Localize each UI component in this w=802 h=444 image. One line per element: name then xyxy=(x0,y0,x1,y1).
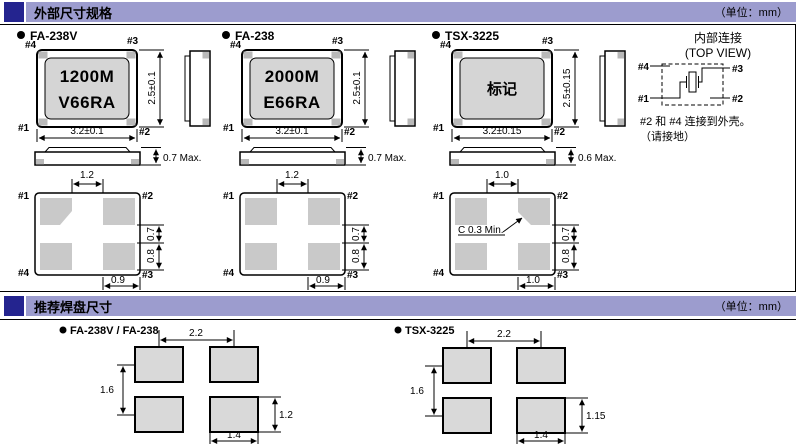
land-pattern-name: FA-238V / FA-238 xyxy=(70,325,159,337)
pad-height-label: 1.15 xyxy=(586,411,606,422)
side-body xyxy=(35,152,140,165)
pin-label: #2 xyxy=(139,127,151,138)
crystal-symbol xyxy=(689,72,696,92)
bottom-dim: 1.0 xyxy=(526,275,540,286)
datasheet-page: 外部尺寸规格 （单位：mm） FA-238V #4 #3 #1 #2 1200M… xyxy=(0,0,802,444)
width-dim-label: 3.2±0.15 xyxy=(483,126,522,137)
grounding-note-line2: （请接地） xyxy=(640,130,695,143)
pin-label: #3 xyxy=(127,36,139,47)
land-view: 1.2 #1 #2 #4 #3 0.7 0.8 0.9 xyxy=(223,170,369,290)
bullet-icon xyxy=(432,31,440,39)
pad xyxy=(517,348,565,383)
pin-label: #2 xyxy=(347,191,359,202)
chamfer-note: C 0.3 Min. xyxy=(458,225,504,236)
pad xyxy=(308,243,340,270)
unit-label: （单位：mm） xyxy=(715,298,788,314)
land-pattern-name: TSX-3225 xyxy=(405,325,455,337)
corner-terminal xyxy=(127,52,136,59)
height-dimension: 2.5±0.1 xyxy=(139,50,164,127)
width-dim-label: 3.2±0.1 xyxy=(275,126,309,137)
internal-connection-title: 内部连接 xyxy=(694,30,742,45)
thickness-label: 0.6 Max. xyxy=(578,153,616,164)
pin-label: #4 xyxy=(638,62,650,73)
internal-connection-diagram: 内部连接 (TOP VIEW) #4 #3 #1 #2 #2 和 #4 连接到外… xyxy=(630,28,802,148)
side-view-vertical xyxy=(185,51,210,126)
side-body xyxy=(395,51,415,126)
bottom-dim: 0.9 xyxy=(316,275,330,286)
pitch-x-dimension: 2.2 xyxy=(159,328,234,347)
right-lower-dim: 0.8 xyxy=(561,249,572,263)
side-view-vertical xyxy=(390,51,415,126)
grounding-note-line1: #2 和 #4 连接到外壳。 xyxy=(640,114,751,128)
unit-label: （单位：mm） xyxy=(715,4,788,20)
pad-height-label: 1.2 xyxy=(279,410,293,421)
side-body xyxy=(605,51,625,126)
wire-pin3 xyxy=(699,68,731,82)
fa-238v-drawings: FA-238V #4 #3 #1 #2 1200M V66RA 3.2±0.1 … xyxy=(10,28,225,293)
side-body xyxy=(240,152,345,165)
pad xyxy=(210,397,258,432)
corner-terminal xyxy=(127,119,136,126)
side-terminal xyxy=(203,52,210,59)
section-divider xyxy=(0,319,796,320)
right-lower-dim: 0.8 xyxy=(351,249,362,263)
pin-label: #1 xyxy=(638,94,650,105)
pitch-y-dimension: 1.6 xyxy=(100,365,135,415)
fa-238-drawings: FA-238 #4 #3 #1 #2 2000M E66RA 3.2±0.1 2… xyxy=(215,28,430,293)
pin-label: #3 xyxy=(332,36,344,47)
land-view: 1.0 #1 #2 #4 #3 C 0.3 Min. 0.7 0.8 1.0 xyxy=(433,170,579,290)
pad xyxy=(443,348,491,383)
package-name: TSX-3225 xyxy=(445,29,499,43)
pin-label: #1 xyxy=(18,123,30,134)
pin-label: #1 xyxy=(223,123,235,134)
height-dimension: 2.5±0.15 xyxy=(554,50,579,127)
side-terminal xyxy=(618,119,625,126)
bullet-icon xyxy=(395,327,402,334)
marking-line2: E66RA xyxy=(263,93,320,112)
pad xyxy=(518,243,550,270)
section-title-bar: 推荐焊盘尺寸 （单位：mm） xyxy=(26,296,796,316)
side-view-vertical xyxy=(600,51,625,126)
bottom-dim: 0.9 xyxy=(111,275,125,286)
section-title: 外部尺寸规格 xyxy=(34,3,112,22)
pin-label: #3 xyxy=(557,270,569,281)
pitch-y-dimension: 1.6 xyxy=(410,366,443,416)
pitch-x-label: 2.2 xyxy=(189,328,203,339)
pad xyxy=(245,243,277,270)
internal-connection-subtitle: (TOP VIEW) xyxy=(685,46,751,60)
side-terminal xyxy=(546,159,554,165)
pin-label: #2 xyxy=(557,191,569,202)
pad xyxy=(40,243,72,270)
pin-label: #1 xyxy=(433,123,445,134)
pad xyxy=(308,198,340,225)
pad-height-dimension: 1.2 xyxy=(259,397,293,432)
land-pattern-tsx: TSX-3225 2.2 1.6 1.15 1.4 xyxy=(390,324,660,444)
corner-terminal xyxy=(39,52,48,59)
side-terminal xyxy=(451,159,459,165)
pad xyxy=(455,243,487,270)
top-gap-label: 1.2 xyxy=(285,170,299,181)
pin-label: #2 xyxy=(554,127,566,138)
wire-pin1 xyxy=(650,82,687,98)
right-upper-dim: 0.7 xyxy=(561,227,572,241)
right-upper-dim: 0.7 xyxy=(146,227,157,241)
pin-label: #4 xyxy=(18,268,30,279)
land-view: 1.2 #1 #2 #4 #3 0.7 0.8 0.9 xyxy=(18,170,164,290)
section-title: 推荐焊盘尺寸 xyxy=(34,297,112,316)
corner-terminal xyxy=(244,119,253,126)
top-view: #4 #3 #1 #2 1200M V66RA xyxy=(18,36,151,138)
side-view-horizontal: 0.7 Max. xyxy=(240,148,406,166)
thickness-label: 0.7 Max. xyxy=(368,153,406,164)
pad xyxy=(245,198,277,225)
package-name: FA-238V xyxy=(30,29,77,43)
section-marker-square xyxy=(4,2,24,22)
corner-terminal xyxy=(542,119,551,126)
pitch-y-label: 1.6 xyxy=(410,386,424,397)
side-body xyxy=(450,152,555,165)
pin-label: #4 xyxy=(25,40,37,51)
marking-line1: 标记 xyxy=(486,80,517,98)
width-dimension: 3.2±0.1 xyxy=(242,126,342,142)
tsx-3225-drawings: TSX-3225 #4 #3 #1 #2 标记 3.2±0.15 2.5±0.1… xyxy=(425,28,640,293)
pad xyxy=(103,243,135,270)
width-dim-label: 3.2±0.1 xyxy=(70,126,104,137)
side-terminal xyxy=(408,52,415,59)
pad xyxy=(210,347,258,382)
top-gap-label: 1.0 xyxy=(495,170,509,181)
side-terminal xyxy=(36,159,44,165)
bullet-icon xyxy=(17,31,25,39)
pad xyxy=(103,198,135,225)
land-pattern-fa: FA-238V / FA-238 2.2 1.6 1.2 1.4 xyxy=(55,324,325,444)
thickness-label: 0.7 Max. xyxy=(163,153,201,164)
pin-label: #2 xyxy=(344,127,356,138)
pad xyxy=(135,347,183,382)
pin-label: #3 xyxy=(542,36,554,47)
side-terminal xyxy=(241,159,249,165)
pin-label: #4 xyxy=(230,40,242,51)
side-view-horizontal: 0.6 Max. xyxy=(450,148,616,166)
side-terminal xyxy=(203,119,210,126)
marking-line1: 1200M xyxy=(60,67,114,86)
height-dimension: 2.5±0.1 xyxy=(344,50,369,127)
bullet-icon xyxy=(60,327,67,334)
corner-terminal xyxy=(332,119,341,126)
pin-label: #1 xyxy=(433,191,445,202)
section-header-recommended-pads: 推荐焊盘尺寸 （单位：mm） xyxy=(0,296,802,316)
pad-width-label: 1.4 xyxy=(227,430,241,441)
width-dimension: 3.2±0.15 xyxy=(452,126,552,142)
top-view: #4 #3 #1 #2 标记 xyxy=(433,36,566,138)
width-dimension: 3.2±0.1 xyxy=(37,126,137,142)
corner-terminal xyxy=(542,52,551,59)
side-terminal xyxy=(408,119,415,126)
pin-label: #3 xyxy=(142,270,154,281)
top-view: #4 #3 #1 #2 2000M E66RA xyxy=(223,36,356,138)
side-body xyxy=(190,51,210,126)
pin-label: #4 xyxy=(440,40,452,51)
marking-line1: 2000M xyxy=(265,67,319,86)
pin-label: #1 xyxy=(18,191,30,202)
pin-label: #3 xyxy=(732,64,744,75)
pad-width-label: 1.4 xyxy=(534,430,548,441)
height-dim-label: 2.5±0.1 xyxy=(147,71,158,105)
height-dim-label: 2.5±0.1 xyxy=(352,71,363,105)
side-terminal xyxy=(131,159,139,165)
pin-label: #3 xyxy=(347,270,359,281)
corner-terminal xyxy=(332,52,341,59)
pin-label: #4 xyxy=(433,268,445,279)
pad xyxy=(135,397,183,432)
section-title-bar: 外部尺寸规格 （单位：mm） xyxy=(26,2,796,22)
section-header-external-dimensions: 外部尺寸规格 （单位：mm） xyxy=(0,2,802,22)
corner-terminal xyxy=(244,52,253,59)
corner-terminal xyxy=(454,52,463,59)
right-upper-dim: 0.7 xyxy=(351,227,362,241)
pitch-x-label: 2.2 xyxy=(497,329,511,340)
corner-terminal xyxy=(454,119,463,126)
side-terminal xyxy=(618,52,625,59)
bullet-icon xyxy=(222,31,230,39)
pin-label: #2 xyxy=(142,191,154,202)
top-gap-label: 1.2 xyxy=(80,170,94,181)
height-dim-label: 2.5±0.15 xyxy=(562,68,573,107)
corner-terminal xyxy=(39,119,48,126)
pin-label: #4 xyxy=(223,268,235,279)
side-view-horizontal: 0.7 Max. xyxy=(35,148,201,166)
pad xyxy=(443,398,491,433)
pitch-y-label: 1.6 xyxy=(100,385,114,396)
side-terminal xyxy=(336,159,344,165)
pad-height-dimension: 1.15 xyxy=(566,398,606,433)
pin-label: #2 xyxy=(732,94,744,105)
pin-label: #1 xyxy=(223,191,235,202)
pad xyxy=(455,198,487,225)
right-lower-dim: 0.8 xyxy=(146,249,157,263)
pad xyxy=(517,398,565,433)
section-marker-square xyxy=(4,296,24,316)
pitch-x-dimension: 2.2 xyxy=(467,329,541,348)
marking-line2: V66RA xyxy=(58,93,115,112)
